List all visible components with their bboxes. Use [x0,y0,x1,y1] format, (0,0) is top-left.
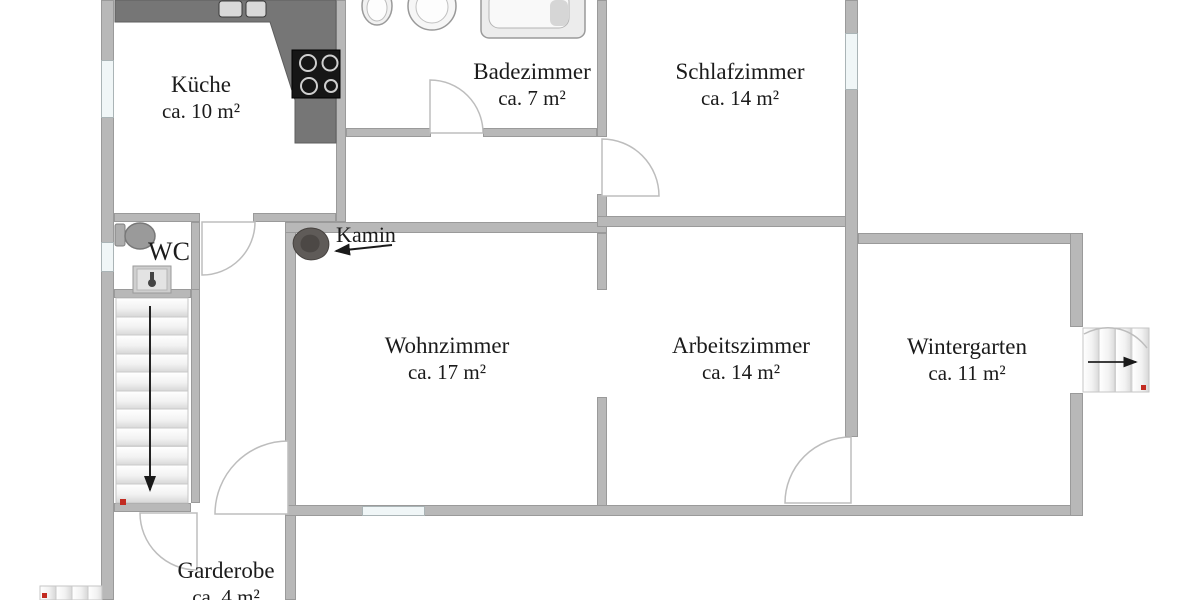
kamin-label: Kamin [336,222,396,248]
wc-faucet-icon [150,272,154,280]
room-area: ca. 17 m² [385,359,510,385]
room-name: Garderobe [177,558,274,584]
room-label-badezimmer: Badezimmer ca. 7 m² [473,59,591,111]
door-arc-corridor [215,441,288,514]
kitchen-sink-basin-left [219,1,242,17]
room-area: ca. 7 m² [473,85,591,111]
room-label-wc: WC [148,239,190,265]
room-label-garderobe: Garderobe ca. 4 m² [177,558,274,600]
floorplan: Küche ca. 10 m² Badezimmer ca. 7 m² Schl… [0,0,1200,600]
room-label-arbeitszimmer: Arbeitszimmer ca. 14 m² [672,333,810,385]
room-area: ca. 14 m² [675,85,804,111]
room-area: ca. 11 m² [907,360,1027,386]
door-arc-schlafzimmer [602,139,659,196]
room-name: Arbeitszimmer [672,333,810,359]
stairs-exit-red-dot [1141,385,1146,390]
room-area: ca. 4 m² [177,584,274,600]
stairs-red-dot [120,499,126,505]
stairs-exit-right [1083,328,1149,392]
bathtub-icon-shade [550,0,568,26]
stairs-exit-bottom-left [40,586,102,600]
annotation-text: Kamin [336,222,396,248]
room-label-kueche: Küche ca. 10 m² [162,72,240,124]
room-name: Wohnzimmer [385,333,510,359]
kamin-icon-inner [301,235,320,253]
wc-drain-icon [148,279,156,287]
room-label-wintergarten: Wintergarten ca. 11 m² [907,334,1027,386]
room-name: Wintergarten [907,334,1027,360]
room-area: ca. 14 m² [672,359,810,385]
room-name: Küche [162,72,240,98]
room-label-schlafzimmer: Schlafzimmer ca. 14 m² [675,59,804,111]
room-area: ca. 10 m² [162,98,240,124]
toilet-icon-inner [367,0,387,21]
wc-toilet-tank-icon [115,224,125,246]
stairs-main [116,298,188,503]
door-arc-wintergarten [785,437,851,503]
room-name: Schlafzimmer [675,59,804,85]
stairs-bl-red-dot [42,593,47,598]
kitchen-sink-basin-right [246,1,266,17]
door-arc-kueche [202,222,255,275]
room-name: WC [148,239,190,265]
room-name: Badezimmer [473,59,591,85]
room-label-wohnzimmer: Wohnzimmer ca. 17 m² [385,333,510,385]
